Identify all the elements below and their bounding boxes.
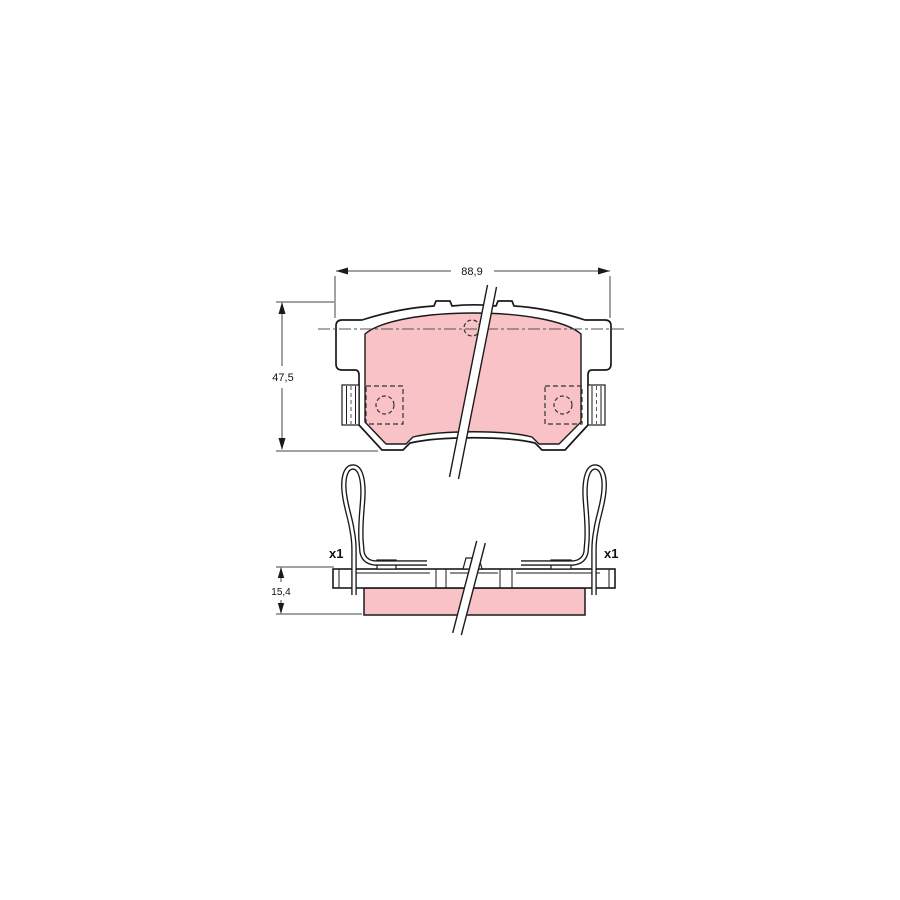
- top-view-pad-face: [318, 285, 626, 479]
- brake-pad-technical-drawing: 88,9 47,5 15,4 x1 x1: [0, 0, 900, 900]
- width-dimension-label: 88,9: [461, 266, 482, 278]
- right-abutment-lug: [588, 385, 605, 425]
- friction-material-edge: [364, 588, 585, 615]
- quantity-label-right: x1: [604, 546, 618, 561]
- height-dimension-label: 47,5: [272, 372, 293, 384]
- front-view-pad-edge: [333, 467, 615, 635]
- quantity-label-left: x1: [329, 546, 343, 561]
- left-abutment-lug: [342, 385, 359, 425]
- thickness-dimension-label: 15,4: [271, 587, 291, 598]
